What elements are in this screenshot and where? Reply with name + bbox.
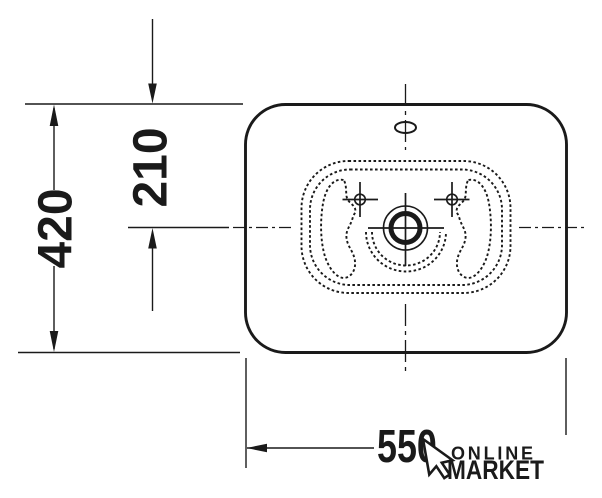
washbasin-top-view-drawing: 420 210 550 bbox=[0, 0, 602, 498]
height-dimension-arrow-down bbox=[50, 331, 59, 352]
recess-contour-right bbox=[457, 180, 491, 278]
watermark-line2: MARKET bbox=[447, 455, 544, 485]
cursor-arrow-icon bbox=[423, 435, 455, 481]
half-height-dimension-label: 210 bbox=[125, 127, 178, 207]
fixing-mark-right bbox=[434, 182, 470, 217]
technical-drawing-page: 420 210 550 bbox=[0, 0, 602, 498]
fixing-mark-left bbox=[343, 182, 379, 217]
drain bbox=[368, 193, 444, 266]
watermark-logo: ONLINE MARKET bbox=[423, 435, 544, 486]
recess-contour-left bbox=[321, 180, 355, 278]
width-dimension-arrow-left bbox=[247, 444, 268, 453]
half-height-arrow-up bbox=[148, 228, 157, 249]
half-height-arrow-down bbox=[148, 84, 157, 104]
height-dimension-arrow-up bbox=[50, 105, 59, 127]
height-dimension-label: 420 bbox=[30, 188, 83, 268]
